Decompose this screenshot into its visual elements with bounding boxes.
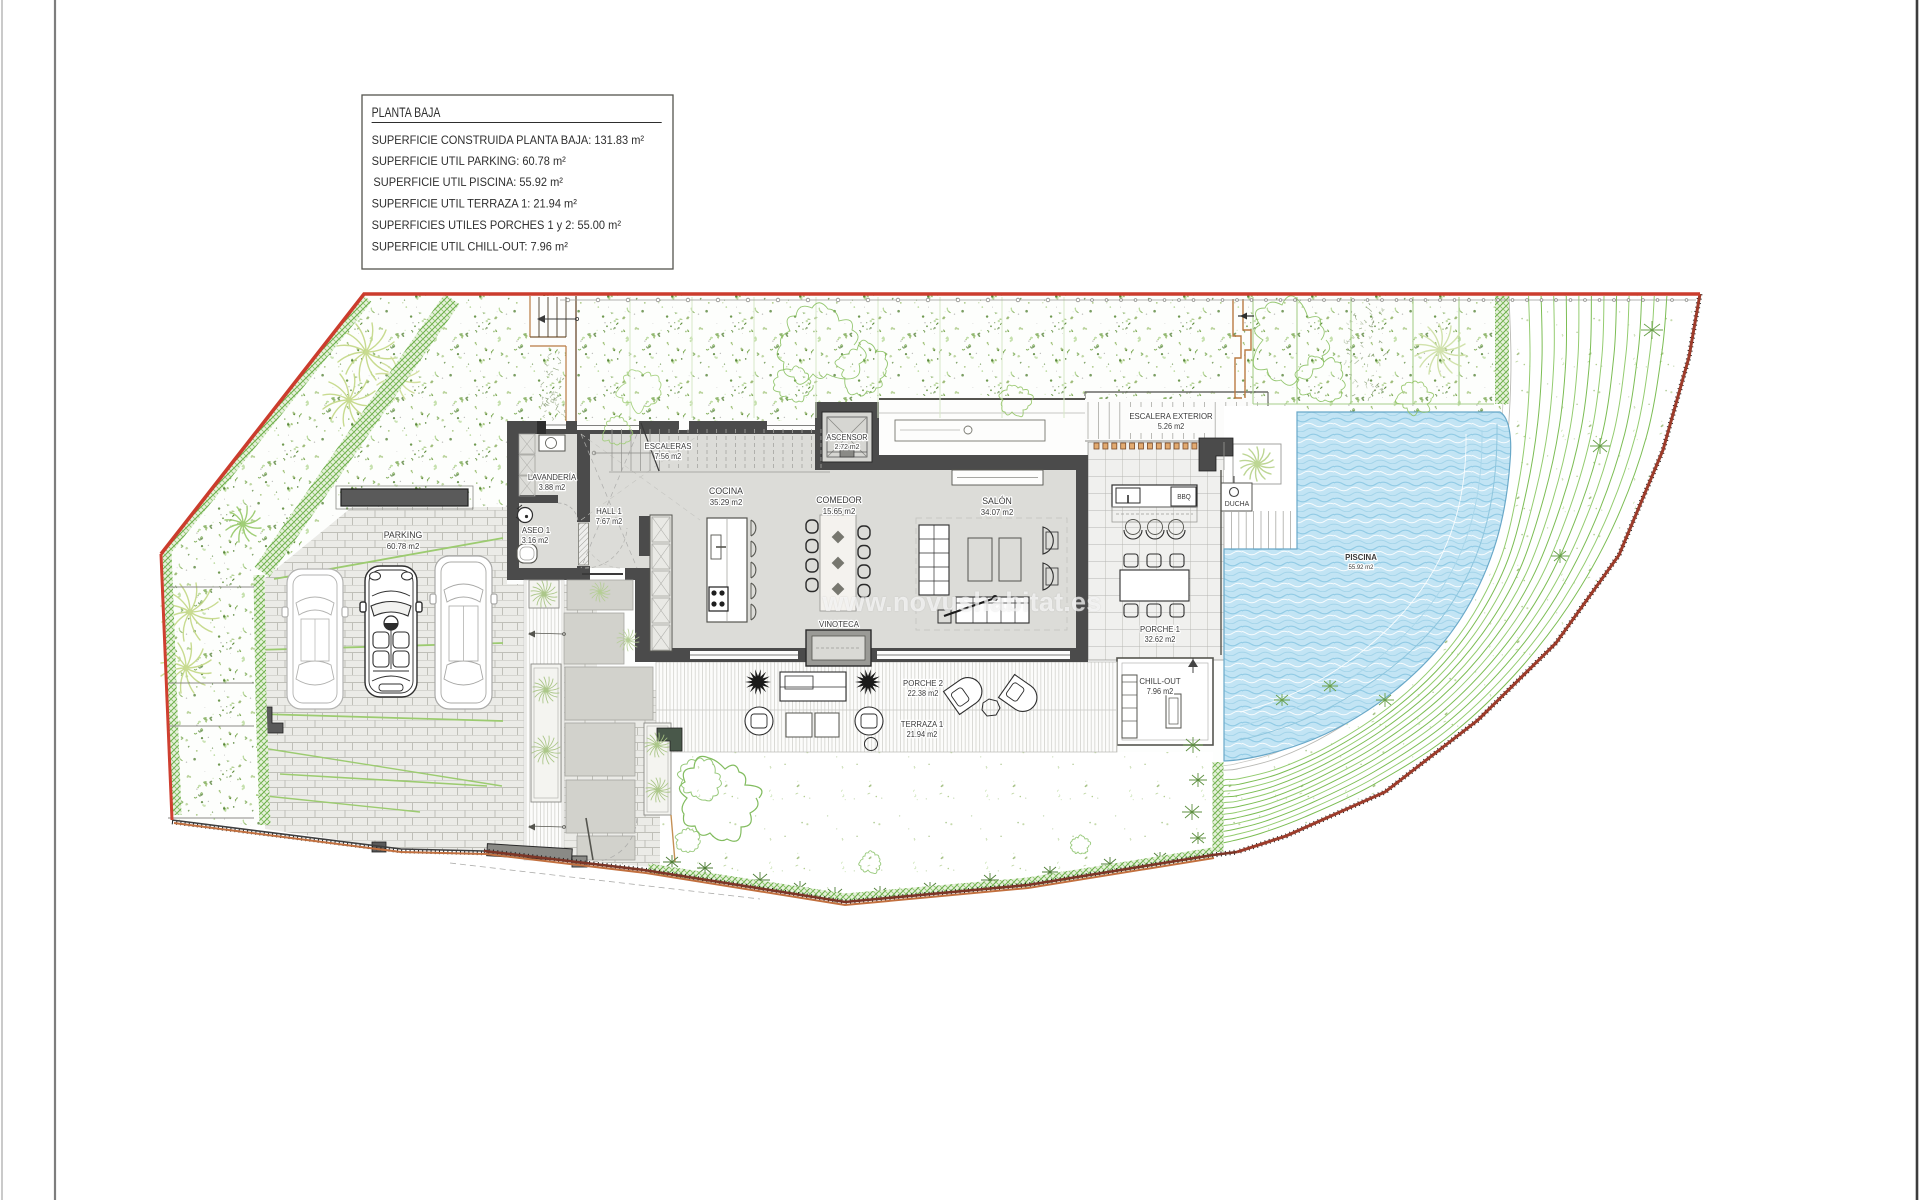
svg-text:3.88 m2: 3.88 m2	[539, 483, 566, 492]
svg-text:BBQ: BBQ	[1177, 494, 1191, 501]
svg-text:PLANTA BAJA: PLANTA BAJA	[372, 105, 442, 121]
svg-text:CHILL-OUT: CHILL-OUT	[1139, 677, 1180, 686]
svg-text:7.67 m2: 7.67 m2	[596, 517, 623, 526]
svg-text:SUPERFICIE UTIL CHILL-OUT: 7.9: SUPERFICIE UTIL CHILL-OUT: 7.96 m²	[372, 241, 568, 253]
svg-text:21.94 m2: 21.94 m2	[907, 730, 938, 739]
svg-text:7.96 m2: 7.96 m2	[1147, 687, 1174, 696]
svg-text:PISCINA: PISCINA	[1345, 553, 1377, 562]
svg-text:DUCHA: DUCHA	[1225, 499, 1250, 508]
svg-text:ESCALERA EXTERIOR: ESCALERA EXTERIOR	[1129, 412, 1212, 421]
svg-text:7.56 m2: 7.56 m2	[655, 452, 682, 461]
svg-text:PORCHE 2: PORCHE 2	[903, 679, 943, 688]
svg-text:SUPERFICIE UTIL PISCINA: 55.92: SUPERFICIE UTIL PISCINA: 55.92 m²	[373, 177, 563, 189]
svg-text:SUPERFICIE CONSTRUIDA PLANTA B: SUPERFICIE CONSTRUIDA PLANTA BAJA: 131.8…	[372, 135, 645, 147]
svg-text:60.78 m2: 60.78 m2	[387, 542, 420, 551]
svg-text:www.novushabitat.es: www.novushabitat.es	[822, 587, 1102, 617]
svg-text:TERRAZA 1: TERRAZA 1	[901, 720, 944, 729]
svg-text:2.72 m2: 2.72 m2	[835, 442, 860, 451]
svg-text:SALÓN: SALÓN	[982, 496, 1012, 506]
svg-text:55.92 m2: 55.92 m2	[1349, 564, 1374, 571]
svg-text:22.38 m2: 22.38 m2	[908, 689, 939, 698]
svg-text:ASCENSOR: ASCENSOR	[826, 433, 868, 442]
svg-text:3.16 m2: 3.16 m2	[522, 536, 549, 545]
svg-text:HALL 1: HALL 1	[596, 507, 622, 516]
svg-text:34.07 m2: 34.07 m2	[981, 508, 1014, 517]
svg-text:SUPERFICIE UTIL TERRAZA 1: 21.: SUPERFICIE UTIL TERRAZA 1: 21.94 m²	[372, 198, 577, 210]
svg-text:ESCALERAS: ESCALERAS	[645, 442, 692, 451]
svg-text:LAVANDERÍA: LAVANDERÍA	[528, 472, 577, 482]
svg-text:SUPERFICIE UTIL PARKING: 60.78: SUPERFICIE UTIL PARKING: 60.78 m²	[372, 156, 566, 168]
svg-text:ASEO 1: ASEO 1	[522, 526, 551, 535]
svg-text:5.26 m2: 5.26 m2	[1158, 422, 1185, 431]
svg-text:32.62 m2: 32.62 m2	[1145, 635, 1176, 644]
svg-text:COCINA: COCINA	[709, 486, 744, 496]
svg-text:PARKING: PARKING	[384, 530, 423, 540]
svg-text:35.29 m2: 35.29 m2	[710, 498, 743, 507]
svg-text:VINOTECA: VINOTECA	[819, 620, 859, 629]
svg-text:PORCHE 1: PORCHE 1	[1140, 625, 1180, 634]
svg-text:15.65 m2: 15.65 m2	[823, 507, 856, 516]
svg-text:COMEDOR: COMEDOR	[816, 495, 862, 505]
svg-text:SUPERFICIES UTILES PORCHES 1 y: SUPERFICIES UTILES PORCHES 1 y 2: 55.00 …	[372, 220, 622, 232]
